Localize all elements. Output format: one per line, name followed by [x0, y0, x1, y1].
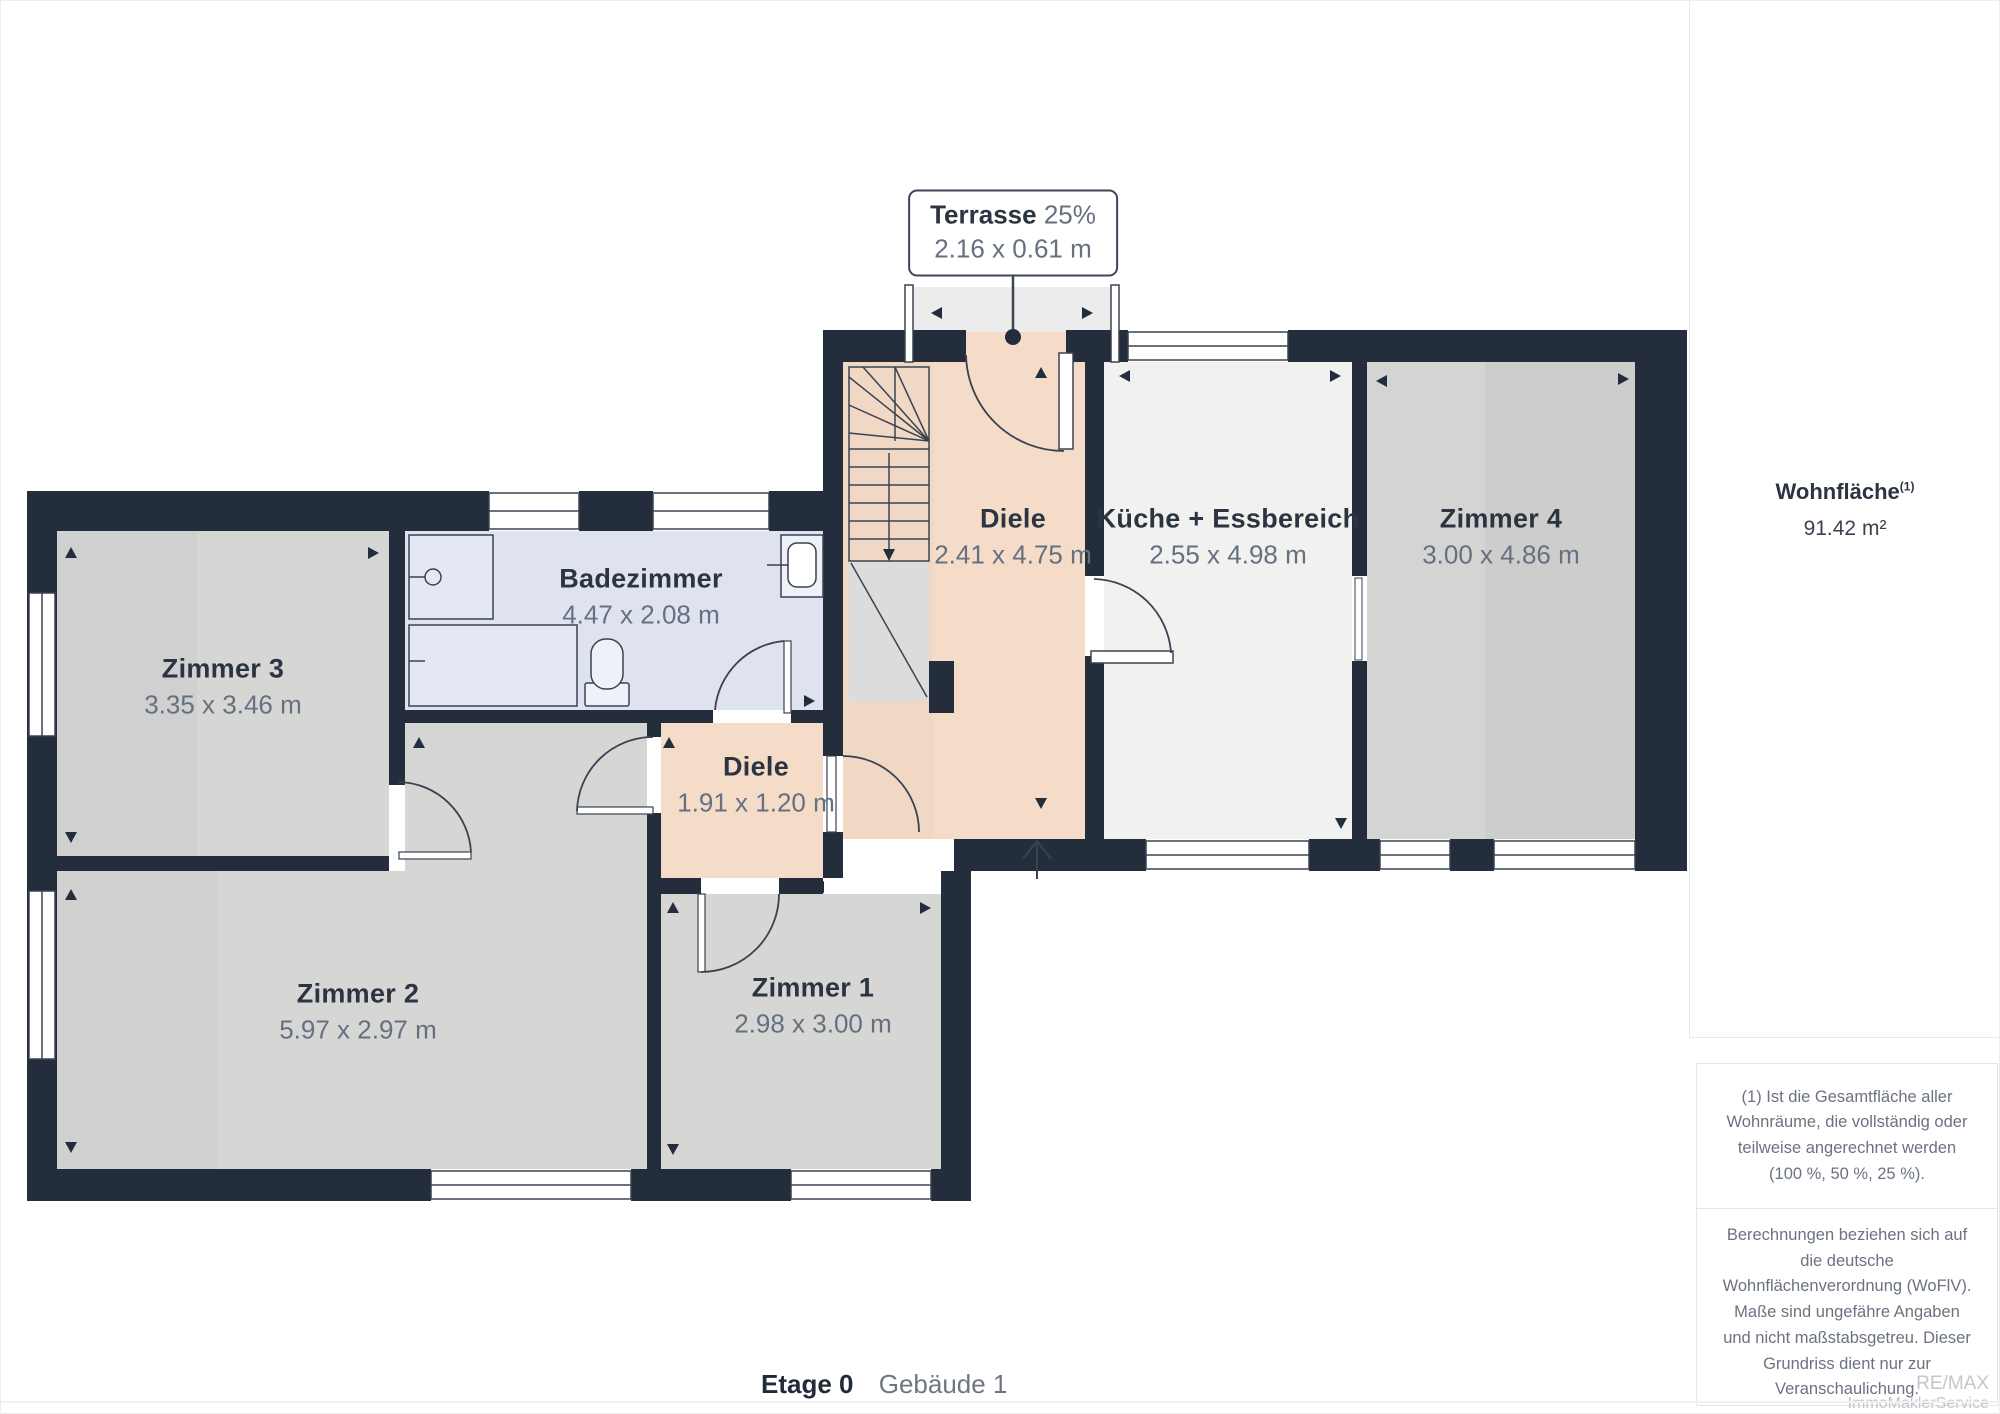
shade	[1485, 362, 1635, 839]
terrace-name: Terrasse	[930, 200, 1037, 230]
remax-brand-line2: ImmoMaklerService	[1848, 1395, 1989, 1413]
building-label: Gebäude 1	[879, 1369, 1008, 1399]
living-area-label: Wohnfläche	[1776, 479, 1900, 504]
door-leaf	[1059, 353, 1073, 449]
bathtub	[409, 625, 577, 706]
label-diele: Diele 2.41 x 4.75 m	[934, 504, 1092, 571]
opening-divider	[1355, 578, 1362, 660]
terrace-post	[905, 285, 913, 362]
room-dims: 3.35 x 3.46 m	[144, 690, 302, 721]
room-name: Zimmer 4	[1422, 504, 1580, 535]
room-dims: 5.97 x 2.97 m	[279, 1015, 437, 1046]
door-leaf	[784, 641, 791, 713]
sidebar: Wohnfläche(1) 91.42 m²	[1689, 1, 2000, 1038]
room-name: Küche + Essbereich	[1097, 504, 1360, 535]
room-dims: 4.47 x 2.08 m	[559, 600, 723, 631]
label-diele-klein: Diele 1.91 x 1.20 m	[677, 752, 835, 819]
window	[489, 493, 579, 529]
floorplan-page: Zimmer 3 3.35 x 3.46 m Badezimmer 4.47 x…	[0, 0, 2000, 1414]
living-area-footnote-marker: (1)	[1900, 480, 1915, 494]
living-area-title: Wohnfläche(1)	[1690, 479, 2000, 505]
door-leaf	[698, 894, 705, 972]
remax-brand: RE/MAX ImmoMaklerService	[1848, 1373, 1989, 1413]
label-zimmer4: Zimmer 4 3.00 x 4.86 m	[1422, 504, 1580, 571]
label-zimmer3: Zimmer 3 3.35 x 3.46 m	[144, 654, 302, 721]
terrace-dims: 2.16 x 0.61 m	[930, 234, 1096, 265]
window	[1380, 841, 1450, 869]
label-zimmer2: Zimmer 2 5.97 x 2.97 m	[279, 979, 437, 1046]
window	[1128, 332, 1288, 360]
window	[653, 493, 769, 529]
label-badezimmer: Badezimmer 4.47 x 2.08 m	[559, 564, 723, 631]
room-dims: 2.41 x 4.75 m	[934, 540, 1092, 571]
window	[29, 891, 55, 1059]
room-name: Badezimmer	[559, 564, 723, 595]
room-name: Diele	[934, 504, 1092, 535]
room-dims: 2.55 x 4.98 m	[1097, 540, 1360, 571]
room-dims: 1.91 x 1.20 m	[677, 788, 835, 819]
living-area-block: Wohnfläche(1) 91.42 m²	[1690, 479, 2000, 541]
living-area-value: 91.42 m²	[1690, 517, 2000, 541]
footnote-1-text: (1) Ist die Gesamtfläche aller Wohnräume…	[1721, 1085, 1973, 1188]
door-leaf	[1091, 651, 1173, 663]
door-leaf	[577, 807, 653, 814]
terrace-percent: 25%	[1044, 200, 1096, 230]
terrace-point	[1005, 329, 1021, 345]
terrace-post	[1111, 285, 1119, 362]
window	[1146, 841, 1309, 869]
under-stair-area	[849, 561, 929, 701]
room-name: Diele	[677, 752, 835, 783]
label-zimmer1: Zimmer 1 2.98 x 3.00 m	[734, 973, 892, 1040]
room-dims: 2.98 x 3.00 m	[734, 1009, 892, 1040]
window	[431, 1171, 631, 1199]
toilet	[585, 639, 629, 706]
window	[29, 593, 55, 736]
terrace-callout-title: Terrasse 25%	[930, 200, 1096, 231]
room-name: Zimmer 3	[144, 654, 302, 685]
floor-caption: Etage 0 Gebäude 1	[761, 1369, 1007, 1400]
room-name: Zimmer 1	[734, 973, 892, 1004]
label-kueche: Küche + Essbereich 2.55 x 4.98 m	[1097, 504, 1360, 571]
room-dims: 3.00 x 4.86 m	[1422, 540, 1580, 571]
window	[1494, 841, 1635, 869]
remax-brand-line1: RE/MAX	[1848, 1373, 1989, 1395]
floor-label: Etage 0	[761, 1369, 854, 1399]
shade	[57, 871, 217, 1169]
room-kueche-floor	[1104, 362, 1352, 839]
window	[791, 1171, 931, 1199]
bottom-divider	[1, 1401, 2000, 1403]
room-name: Zimmer 2	[279, 979, 437, 1010]
door-leaf	[399, 852, 471, 859]
terrace-callout: Terrasse 25% 2.16 x 0.61 m	[908, 190, 1118, 277]
footnote-1-box: (1) Ist die Gesamtfläche aller Wohnräume…	[1696, 1063, 1998, 1209]
